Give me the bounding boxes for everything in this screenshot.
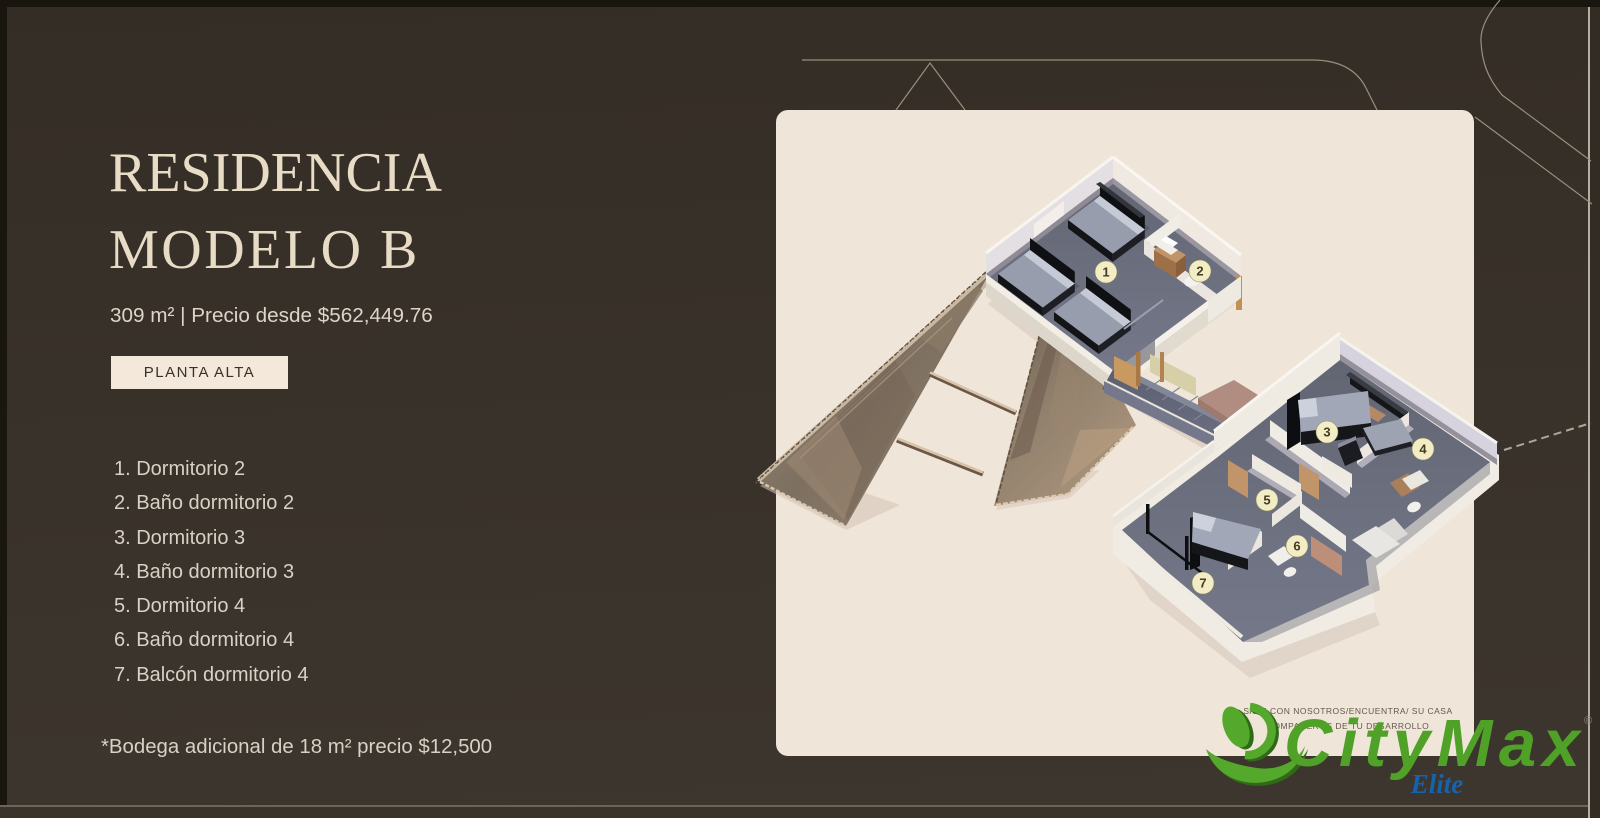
svg-text:5: 5 (1263, 493, 1270, 508)
svg-text:3: 3 (1323, 425, 1330, 440)
svg-text:2: 2 (1196, 264, 1203, 279)
svg-text:1: 1 (1102, 265, 1109, 280)
svg-text:Elite: Elite (1410, 769, 1464, 799)
svg-text:7: 7 (1199, 576, 1206, 591)
svg-text:6: 6 (1293, 539, 1300, 554)
svg-text:®: ® (1584, 715, 1592, 727)
svg-text:4: 4 (1419, 442, 1427, 457)
